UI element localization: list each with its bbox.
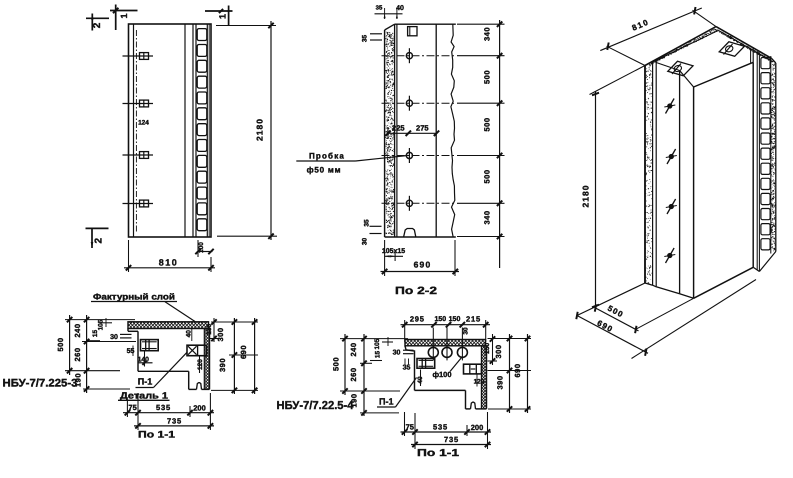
- svg-text:Фактурный слой: Фактурный слой: [93, 292, 175, 302]
- svg-text:240: 240: [73, 323, 82, 337]
- svg-text:По 1-1: По 1-1: [417, 448, 460, 459]
- svg-text:1: 1: [119, 13, 129, 18]
- svg-text:105: 105: [98, 319, 105, 330]
- svg-text:35: 35: [376, 5, 383, 12]
- svg-text:Деталь 1: Деталь 1: [120, 391, 168, 401]
- svg-text:30: 30: [362, 238, 369, 246]
- svg-text:150: 150: [449, 316, 461, 323]
- svg-text:500: 500: [56, 337, 65, 351]
- svg-text:535: 535: [156, 403, 171, 412]
- svg-text:690: 690: [414, 259, 432, 269]
- svg-text:735: 735: [167, 416, 182, 425]
- svg-text:75: 75: [128, 403, 136, 412]
- svg-text:150: 150: [434, 316, 446, 323]
- svg-text:735: 735: [444, 435, 459, 444]
- svg-text:130: 130: [206, 323, 213, 334]
- svg-text:П-1: П-1: [138, 377, 152, 387]
- svg-text:2180: 2180: [255, 118, 265, 141]
- svg-text:275: 275: [416, 124, 429, 133]
- svg-text:ф50 мм: ф50 мм: [307, 165, 342, 174]
- svg-text:2: 2: [94, 237, 105, 243]
- svg-text:По 1-1: По 1-1: [138, 430, 176, 441]
- svg-text:120: 120: [474, 379, 485, 386]
- svg-text:2: 2: [92, 22, 103, 28]
- svg-text:100: 100: [198, 242, 205, 253]
- svg-text:НБУ-7/7.22.5-4: НБУ-7/7.22.5-4: [277, 400, 355, 412]
- svg-text:200: 200: [471, 423, 484, 432]
- svg-text:500: 500: [483, 70, 492, 84]
- svg-text:75: 75: [406, 423, 414, 432]
- svg-text:35: 35: [364, 219, 371, 227]
- svg-text:500: 500: [483, 169, 492, 183]
- svg-text:35: 35: [403, 365, 411, 372]
- svg-text:30: 30: [393, 350, 401, 357]
- svg-text:15: 15: [374, 351, 381, 359]
- svg-text:810: 810: [159, 258, 179, 268]
- svg-text:30: 30: [110, 334, 118, 341]
- svg-text:40: 40: [396, 5, 404, 12]
- svg-text:105: 105: [374, 338, 381, 349]
- svg-text:340: 340: [483, 27, 492, 41]
- svg-text:35: 35: [362, 35, 369, 43]
- svg-text:П-1: П-1: [379, 397, 393, 407]
- svg-text:30: 30: [463, 327, 470, 335]
- svg-text:124: 124: [138, 120, 149, 127]
- svg-text:250: 250: [484, 342, 491, 353]
- svg-text:НБУ-7/7.225-3: НБУ-7/7.225-3: [3, 378, 78, 390]
- svg-text:300: 300: [494, 344, 503, 358]
- svg-text:300: 300: [216, 327, 225, 341]
- svg-text:200: 200: [193, 404, 206, 413]
- svg-text:225: 225: [392, 124, 405, 133]
- svg-text:240: 240: [349, 342, 358, 356]
- svg-text:500: 500: [332, 357, 341, 371]
- svg-text:390: 390: [218, 358, 227, 372]
- svg-text:535: 535: [433, 423, 448, 432]
- svg-text:Пробка: Пробка: [309, 152, 345, 161]
- svg-text:2180: 2180: [581, 185, 591, 208]
- svg-text:260: 260: [73, 347, 82, 361]
- svg-text:295: 295: [410, 315, 425, 324]
- svg-text:215: 215: [466, 315, 481, 324]
- svg-text:ф100: ф100: [432, 370, 451, 379]
- svg-text:690: 690: [239, 345, 248, 359]
- svg-text:По 2-2: По 2-2: [395, 285, 437, 297]
- svg-text:260: 260: [349, 367, 358, 381]
- svg-text:390: 390: [496, 375, 505, 389]
- svg-text:340: 340: [483, 210, 492, 224]
- svg-text:105х15: 105х15: [382, 248, 405, 255]
- svg-text:500: 500: [483, 117, 492, 131]
- svg-text:1: 1: [218, 14, 228, 19]
- svg-text:120: 120: [197, 359, 204, 370]
